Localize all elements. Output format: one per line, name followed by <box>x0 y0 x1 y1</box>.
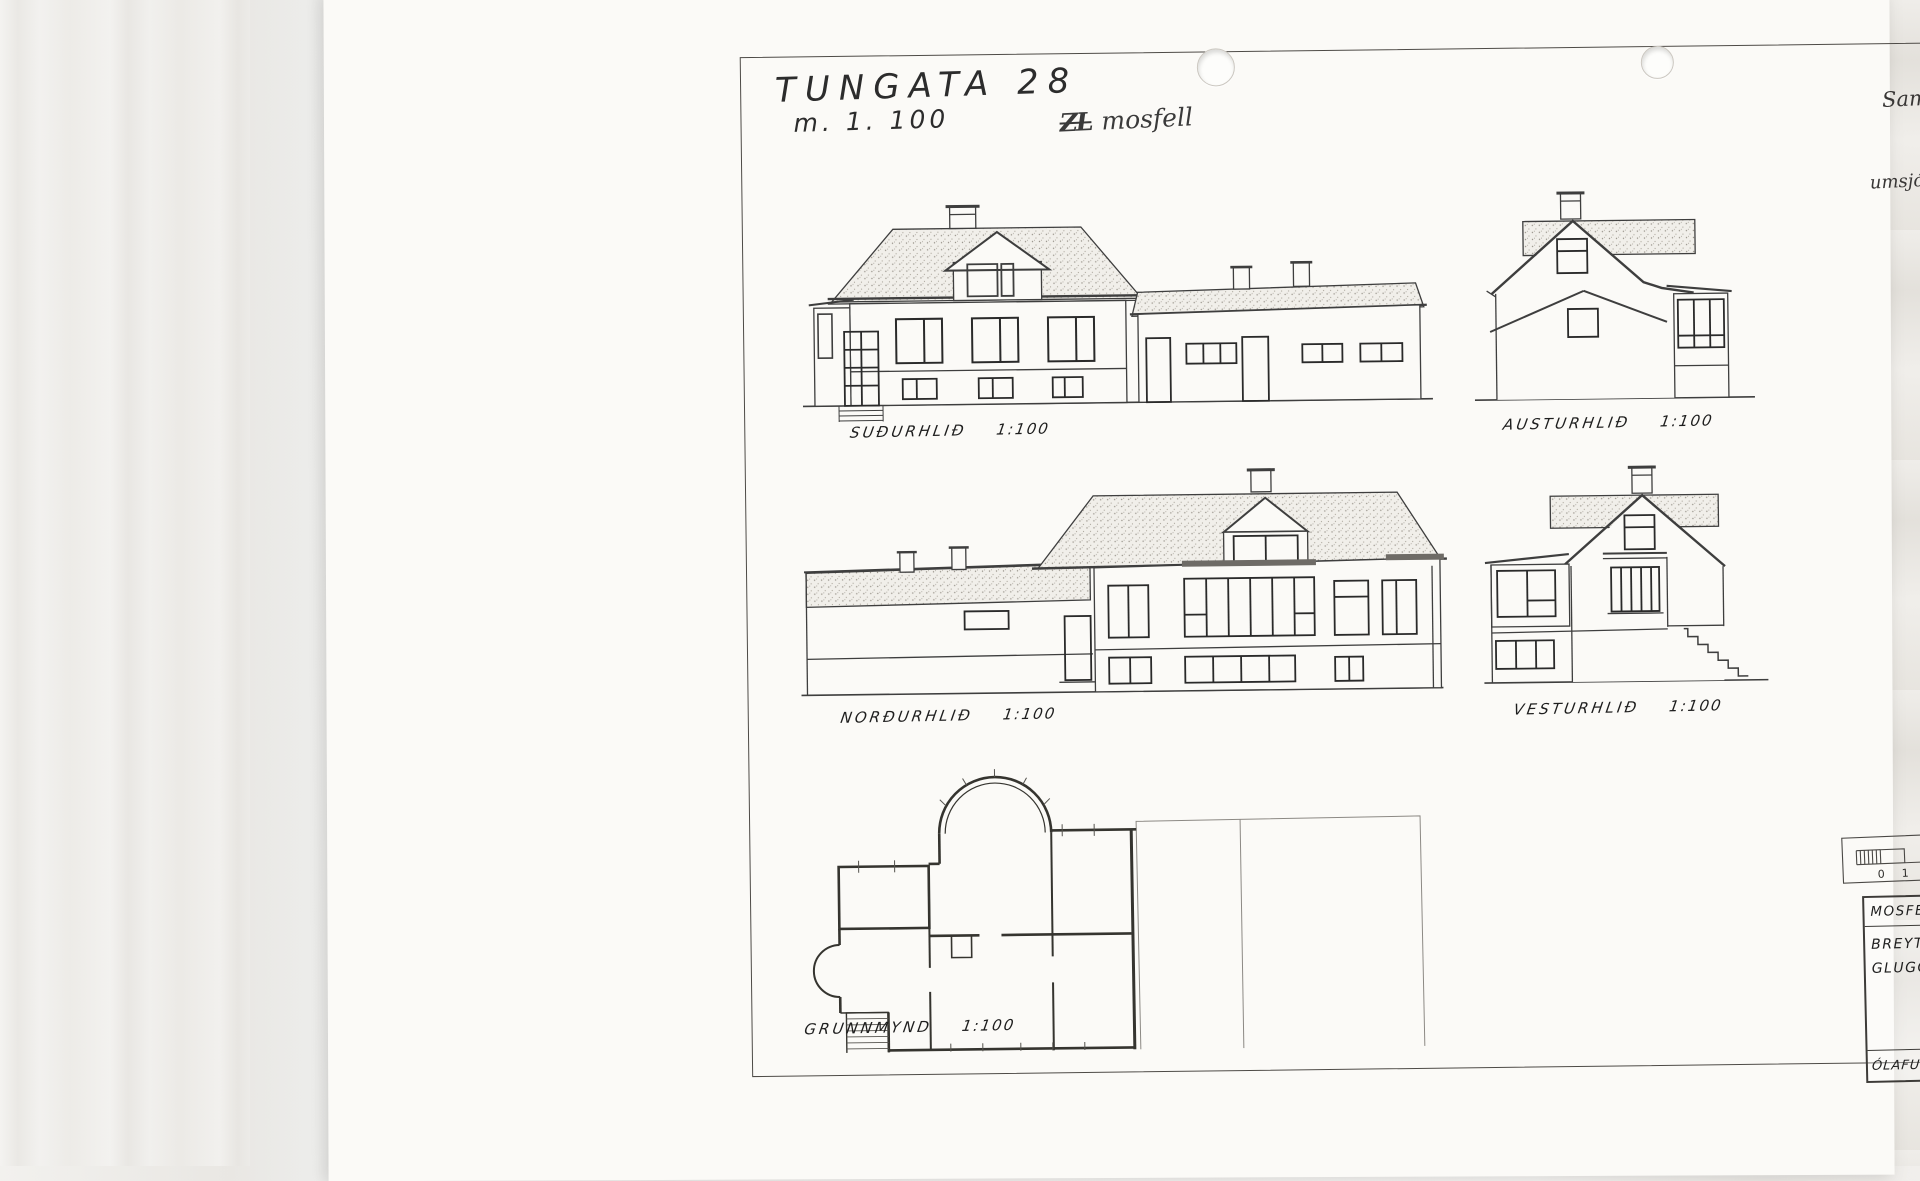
approval-line-3: umsjón.m. Egill Kristjánsson <box>1869 156 1920 193</box>
scanned-drawing-page: { "page": { "annotations": { "title": "T… <box>0 0 1920 1166</box>
scanner-background-left <box>0 0 250 1166</box>
title-block-project: MOSFELL / EIRÍKUR SIGURÐSSON <box>1864 891 1920 927</box>
label-south-elevation: SUÐURHLIÐ1:100 <box>849 419 1052 441</box>
label-west-elevation: VESTURHLIÐ1:100 <box>1512 696 1724 718</box>
east-elevation-drawing <box>1460 179 1760 420</box>
approval-note: Samþ. í byggingarn. 11 - 7 - '72 umsjón.… <box>1881 72 1920 192</box>
label-east-elevation: AUSTURHLIÐ1:100 <box>1502 411 1715 433</box>
scale-tick: 1 <box>1901 867 1909 880</box>
approval-line-1: Samþ. í byggingarn. <box>1881 72 1920 112</box>
handwritten-scale-note: m. 1. 100 <box>793 104 950 138</box>
north-elevation-drawing <box>791 466 1451 711</box>
title-block: MOSFELL / EIRÍKUR SIGURÐSSON BREYTING Á … <box>1862 889 1920 1083</box>
drawing-frame: TUNGATA 28 m. 1. 100 ZLmosfell Samþ. í b… <box>740 40 1920 1077</box>
paper-sheet: TUNGATA 28 m. 1. 100 ZLmosfell Samþ. í b… <box>323 0 1894 1181</box>
south-elevation-drawing <box>792 193 1440 423</box>
west-elevation-drawing <box>1474 460 1774 701</box>
title-block-subject: BREYTING Á GLUGGAPÓSTUM <box>1865 923 1920 1050</box>
crossed-initials: ZL <box>1059 107 1092 137</box>
handwritten-location-note: ZLmosfell <box>1059 102 1194 137</box>
label-north-elevation: NORÐURHLIÐ1:100 <box>839 704 1057 727</box>
punch-hole-left <box>1197 48 1235 86</box>
floor-plan-drawing <box>797 753 1458 1053</box>
scale-tick: 0 <box>1877 868 1885 881</box>
location-text: mosfell <box>1101 102 1194 135</box>
punch-hole-right <box>1641 46 1674 79</box>
handwritten-street-title: TUNGATA 28 <box>775 61 1079 111</box>
graphic-scale-bar: 0 1 2 3 4 5 6 7 8 <box>1840 824 1920 888</box>
